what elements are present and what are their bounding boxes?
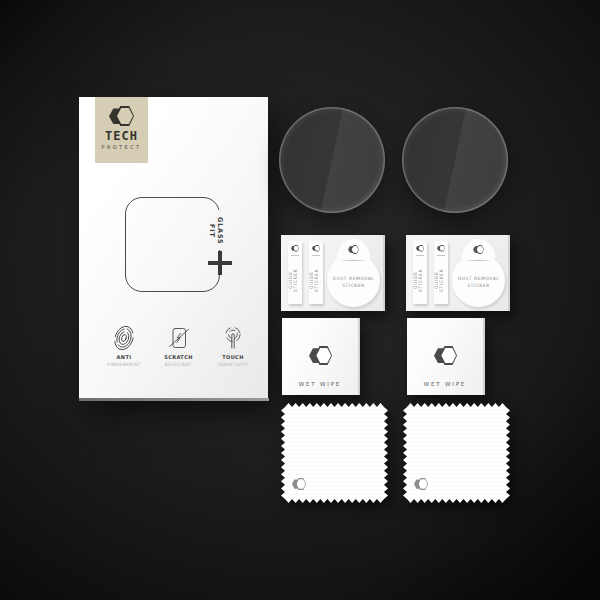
- wet-wipe-sachet: WET WIPE: [407, 318, 485, 395]
- feature-scratch-resistant: SCRATCH RESISTANT: [156, 325, 202, 367]
- guide-sticker-strip: GUIDE STICKER: [309, 241, 323, 304]
- sticker-card: GUIDE STICKER GUIDE STICKER DUST REMOVAL…: [281, 235, 385, 311]
- guide-sticker-strip: GUIDE STICKER: [434, 241, 448, 304]
- divider: [416, 255, 424, 256]
- brand-subname: PROTECT: [95, 144, 148, 150]
- dust-removal-sticker: DUST REMOVAL STICKER: [327, 239, 380, 307]
- wet-wipe-label: WET WIPE: [282, 381, 358, 387]
- product-photo-stage: TECH PROTECT GLASS FIT ANTI FINGERPRI: [0, 0, 600, 600]
- dust-removal-line2: STICKER: [452, 282, 505, 289]
- scratch-icon: [168, 325, 190, 351]
- brand-logo-panel: TECH PROTECT: [95, 97, 148, 163]
- glass-disc: [279, 107, 385, 213]
- guide-sticker-strip: GUIDE STICKER: [413, 241, 427, 304]
- dust-removal-label: DUST REMOVAL STICKER: [327, 275, 380, 289]
- guide-sticker-strip: GUIDE STICKER: [288, 241, 302, 304]
- hexagon-stamp-icon: [292, 478, 306, 490]
- feature-subtitle: SENSITIVITY: [210, 362, 256, 367]
- feature-title: SCRATCH: [156, 354, 202, 360]
- guide-sticker-label: GUIDE STICKER: [309, 260, 323, 300]
- hexagon-logo-icon: [309, 346, 332, 365]
- dust-removal-line1: DUST REMOVAL: [452, 275, 505, 282]
- divider: [437, 255, 445, 256]
- guide-sticker-label: GUIDE STICKER: [288, 260, 302, 300]
- dust-removal-label: DUST REMOVAL STICKER: [452, 275, 505, 289]
- plus-mark-icon: [208, 251, 232, 275]
- cloth-surface: [281, 403, 388, 503]
- divider: [466, 260, 491, 261]
- sticker-card: GUIDE STICKER GUIDE STICKER DUST REMOVAL…: [406, 235, 510, 311]
- dust-removal-line1: DUST REMOVAL: [327, 275, 380, 282]
- hexagon-stamp-icon: [414, 478, 428, 490]
- retail-box: TECH PROTECT GLASS FIT ANTI FINGERPRI: [79, 97, 268, 398]
- dust-removal-sticker: DUST REMOVAL STICKER: [452, 239, 505, 307]
- brand-name: TECH: [95, 129, 148, 143]
- feature-row: ANTI FINGERPRINT SCRATCH RESISTANT: [101, 325, 256, 367]
- microfiber-cloth: [281, 403, 388, 503]
- feature-title: TOUCH: [210, 354, 256, 360]
- guide-sticker-label: GUIDE STICKER: [434, 260, 448, 300]
- tech-protect-hexagon-icon: [109, 106, 134, 126]
- divider: [341, 260, 366, 261]
- glass-fit-label: GLASS FIT: [214, 211, 224, 251]
- hexagon-logo-icon: [312, 245, 320, 252]
- hexagon-logo-icon: [291, 245, 299, 252]
- microfiber-cloth: [403, 403, 510, 503]
- dust-removal-line2: STICKER: [327, 282, 380, 289]
- guide-sticker-label: GUIDE STICKER: [413, 260, 427, 300]
- fingerprint-icon: [113, 325, 135, 351]
- hexagon-logo-icon: [434, 346, 457, 365]
- wet-wipe-label: WET WIPE: [407, 381, 483, 387]
- touch-icon: [222, 325, 244, 351]
- wet-wipe-sachet: WET WIPE: [282, 318, 360, 395]
- feature-subtitle: FINGERPRINT: [101, 362, 147, 367]
- cloth-surface: [403, 403, 510, 503]
- glass-disc: [402, 107, 508, 213]
- feature-touch-sensitivity: TOUCH SENSITIVITY: [210, 325, 256, 367]
- hexagon-logo-icon: [416, 245, 424, 252]
- divider: [291, 255, 299, 256]
- feature-subtitle: RESISTANT: [156, 362, 202, 367]
- hexagon-logo-icon: [348, 245, 359, 254]
- feature-anti-fingerprint: ANTI FINGERPRINT: [101, 325, 147, 367]
- divider: [312, 255, 320, 256]
- hexagon-logo-icon: [473, 245, 484, 254]
- watch-face-outline: GLASS FIT: [125, 197, 220, 292]
- feature-title: ANTI: [101, 354, 147, 360]
- hexagon-logo-icon: [437, 245, 445, 252]
